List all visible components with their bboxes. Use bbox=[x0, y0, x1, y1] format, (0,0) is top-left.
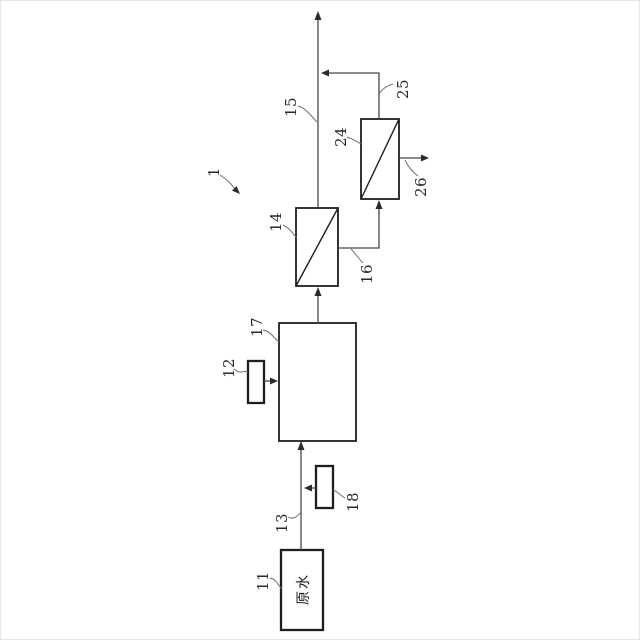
diagram-linework bbox=[1, 1, 640, 640]
system-ref-arrow bbox=[220, 175, 240, 194]
arrowhead-return-join bbox=[321, 70, 329, 77]
label-11-raw-water-tank: 11 bbox=[254, 571, 272, 591]
leader-14 bbox=[283, 225, 297, 238]
label-16-intermediate-line: 16 bbox=[358, 264, 376, 284]
leader-25 bbox=[379, 84, 393, 94]
label-26-discharge-line: 26 bbox=[412, 177, 430, 197]
intermediate-line-16 bbox=[338, 204, 379, 248]
label-12-dosing-unit: 12 bbox=[220, 358, 238, 378]
arrowhead-into-module24 bbox=[376, 200, 383, 209]
leader-15 bbox=[298, 106, 317, 122]
membrane-module-24-symbol bbox=[361, 119, 399, 199]
arrowhead-dosing12 bbox=[270, 378, 278, 385]
patent-flow-diagram: 1 11 12 13 14 15 16 17 18 24 25 26 原水 bbox=[0, 0, 640, 640]
label-24-membrane-module: 24 bbox=[332, 127, 350, 147]
label-15-outlet-line: 15 bbox=[282, 97, 300, 117]
label-18-dosing-unit: 18 bbox=[344, 492, 362, 512]
dosing-unit-18-box bbox=[316, 466, 333, 508]
label-25-return-line: 25 bbox=[394, 79, 412, 99]
return-line-25 bbox=[325, 73, 379, 119]
arrowhead-into-tank17 bbox=[298, 441, 305, 450]
leader-26 bbox=[405, 160, 418, 176]
label-1-system: 1 bbox=[205, 167, 223, 177]
leader-16 bbox=[351, 249, 363, 263]
label-14-membrane-module: 14 bbox=[267, 212, 285, 232]
treatment-tank-17-box bbox=[279, 323, 356, 441]
arrowhead-dosing18 bbox=[304, 485, 312, 492]
dosing-unit-12-box bbox=[248, 361, 264, 403]
system-ref-arrow-curve bbox=[220, 175, 236, 190]
raw-water-text: 原水 bbox=[293, 573, 313, 605]
arrowhead-discharge bbox=[421, 155, 429, 162]
arrowhead-outlet-top bbox=[315, 11, 322, 20]
label-17-treatment-tank: 17 bbox=[248, 317, 266, 337]
label-13-feed-line: 13 bbox=[273, 513, 291, 533]
arrowhead-into-module14 bbox=[315, 287, 322, 296]
membrane-module-14-symbol bbox=[296, 208, 338, 286]
